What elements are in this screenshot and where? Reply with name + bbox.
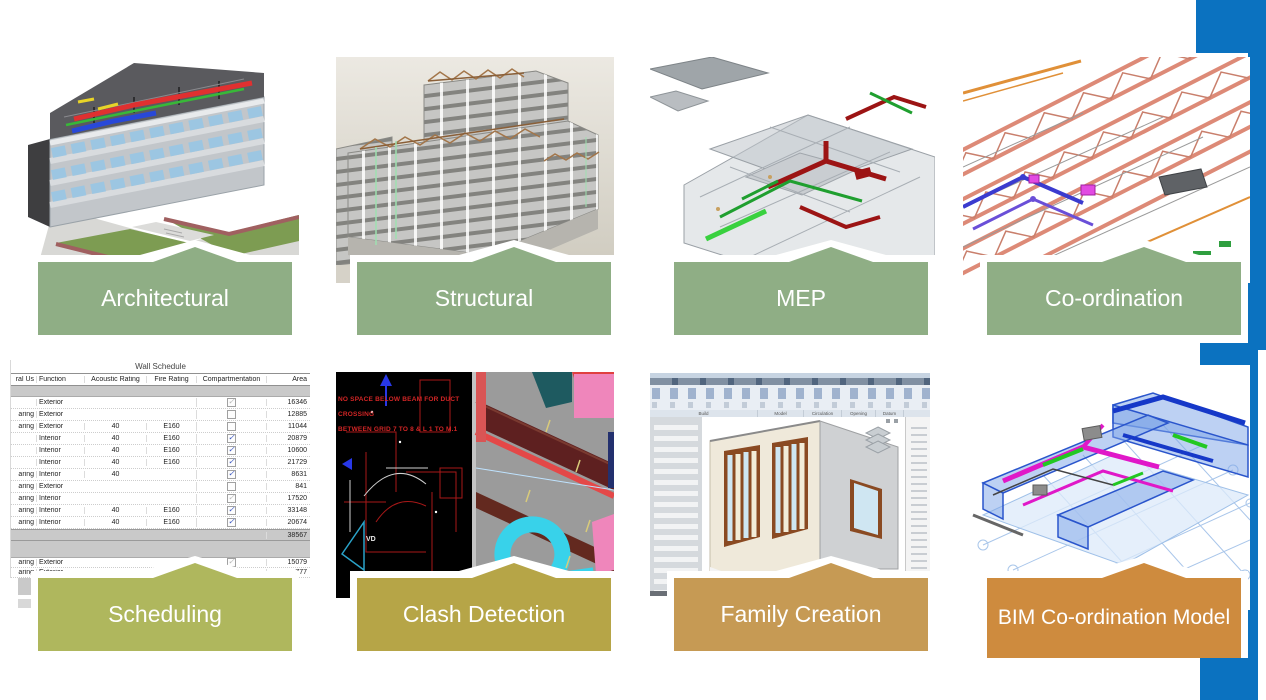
clash-note-line1: NO SPACE BELOW BEAM FOR DUCT CROSSING bbox=[338, 392, 472, 422]
schedule-cell-area: 20879 bbox=[266, 435, 309, 442]
cad-label-vd: VD bbox=[366, 536, 376, 543]
schedule-cell-acoustic: 40 bbox=[84, 507, 146, 514]
wall-schedule-rows: Exterior16346aringExterior12885aringExte… bbox=[11, 397, 310, 529]
schedule-cell-acoustic: 40 bbox=[84, 435, 146, 442]
wall-schedule-title: Wall Schedule bbox=[11, 360, 310, 373]
schedule-cell-area: 8631 bbox=[266, 471, 309, 478]
schedule-cell-usage: aring bbox=[11, 411, 36, 418]
checkbox-checked bbox=[227, 458, 236, 467]
clash-warning-note: NO SPACE BELOW BEAM FOR DUCT CROSSING BE… bbox=[338, 392, 472, 437]
schedule-cell-compartmentation bbox=[196, 422, 266, 431]
ribbon-group-model: Model bbox=[758, 410, 804, 417]
banner-label: Clash Detection bbox=[357, 578, 611, 651]
blue-ribbon-strip bbox=[1248, 0, 1266, 350]
schedule-cell-fire: E160 bbox=[146, 447, 196, 454]
schedule-cell-usage: aring bbox=[11, 507, 36, 514]
schedule-row: Interior40E16010600 bbox=[11, 445, 310, 457]
schedule-row: aringInterior40E16033148 bbox=[11, 505, 310, 517]
schedule-cell-area: 33148 bbox=[266, 507, 309, 514]
banner-coordination: Co-ordination bbox=[980, 240, 1248, 335]
revit-ribbon-icons bbox=[650, 385, 930, 410]
schedule-cell-function: Interior bbox=[36, 495, 84, 502]
schedule-cell-area: 10600 bbox=[266, 447, 309, 454]
schedule-cell-function: Interior bbox=[36, 459, 84, 466]
wall-schedule-header: ral Us Function Acoustic Rating Fire Rat… bbox=[11, 373, 310, 386]
schedule-row: Exterior16346 bbox=[11, 397, 310, 409]
bim-services-slide: Wall Schedule ral Us Function Acoustic R… bbox=[0, 0, 1266, 700]
col-compartmentation: Compartmentation bbox=[196, 376, 266, 383]
schedule-cell-fire: E160 bbox=[146, 459, 196, 466]
schedule-cell-function: Interior bbox=[36, 519, 84, 526]
ribbon-group-datum: Datum bbox=[876, 410, 904, 417]
banner-clash-detection: Clash Detection bbox=[350, 556, 618, 651]
schedule-cell-usage: aring bbox=[11, 519, 36, 526]
schedule-cell-acoustic: 40 bbox=[84, 459, 146, 466]
banner-structural: Structural bbox=[350, 240, 618, 335]
schedule-cell-fire: E160 bbox=[146, 435, 196, 442]
revit-ribbon-group-labels: BuildModelCirculationOpeningDatum bbox=[650, 410, 930, 417]
col-structural-usage: ral Us bbox=[11, 376, 36, 383]
schedule-cell-function: Interior bbox=[36, 447, 84, 454]
schedule-cell-compartmentation bbox=[196, 458, 266, 467]
banner-label: BIM Co-ordination Model bbox=[987, 578, 1241, 658]
schedule-cell-function: Interior bbox=[36, 471, 84, 478]
schedule-cell-compartmentation bbox=[196, 518, 266, 527]
schedule-cell-usage: aring bbox=[11, 423, 36, 430]
schedule-cell-area: 20674 bbox=[266, 519, 309, 526]
schedule-cell-compartmentation bbox=[196, 434, 266, 443]
schedule-cell-compartmentation bbox=[196, 494, 266, 503]
schedule-cell-acoustic: 40 bbox=[84, 423, 146, 430]
checkbox-unchecked bbox=[227, 410, 236, 419]
banner-family-creation: Family Creation bbox=[667, 556, 935, 651]
checkbox-checked bbox=[227, 434, 236, 443]
schedule-cell-area: 17520 bbox=[266, 495, 309, 502]
revit-ribbon-tabs bbox=[650, 378, 930, 385]
schedule-cell-area: 12885 bbox=[266, 411, 309, 418]
banner-label: Structural bbox=[357, 262, 611, 335]
schedule-cell-fire: E160 bbox=[146, 507, 196, 514]
ribbon-group-circulation: Circulation bbox=[804, 410, 842, 417]
schedule-cell-function: Exterior bbox=[36, 423, 84, 430]
schedule-row: Interior40E16021729 bbox=[11, 457, 310, 469]
schedule-cell-usage: aring bbox=[11, 471, 36, 478]
wall-schedule-table: Wall Schedule ral Us Function Acoustic R… bbox=[10, 360, 310, 578]
schedule-row: aringInterior40E16020674 bbox=[11, 517, 310, 529]
schedule-cell-acoustic: 40 bbox=[84, 471, 146, 478]
col-fire-rating: Fire Rating bbox=[146, 376, 196, 383]
schedule-cell-function: Exterior bbox=[36, 411, 84, 418]
checkbox-checked bbox=[227, 446, 236, 455]
schedule-cell-area: 11044 bbox=[266, 423, 309, 430]
schedule-row: aringExterior841 bbox=[11, 481, 310, 493]
col-area: Area bbox=[266, 376, 309, 383]
ribbon-group-build: Build bbox=[650, 410, 758, 417]
schedule-cell-compartmentation bbox=[196, 446, 266, 455]
schedule-cell-function: Interior bbox=[36, 435, 84, 442]
schedule-cell-compartmentation bbox=[196, 482, 266, 491]
banner-bim-coordination-model: BIM Co-ordination Model bbox=[980, 556, 1248, 658]
checkbox-gray-check bbox=[227, 398, 236, 407]
schedule-row: Interior40E16020879 bbox=[11, 433, 310, 445]
total-area-value: 38567 bbox=[266, 532, 309, 539]
col-function: Function bbox=[36, 376, 84, 383]
schedule-cell-compartmentation bbox=[196, 398, 266, 407]
schedule-cell-compartmentation bbox=[196, 410, 266, 419]
schedule-cell-fire: E160 bbox=[146, 423, 196, 430]
banner-label: Scheduling bbox=[38, 578, 292, 651]
schedule-cell-area: 841 bbox=[266, 483, 309, 490]
schedule-cell-usage: aring bbox=[11, 483, 36, 490]
schedule-cell-area: 16346 bbox=[266, 399, 309, 406]
schedule-row: aringExterior40E16011044 bbox=[11, 421, 310, 433]
banner-architectural: Architectural bbox=[31, 240, 299, 335]
clash-note-line2: BETWEEN GRID 7 TO 8 & L 1 TO M.1 bbox=[338, 422, 472, 437]
schedule-group-band bbox=[11, 386, 310, 397]
schedule-cell-acoustic: 40 bbox=[84, 519, 146, 526]
schedule-row: aringInterior17520 bbox=[11, 493, 310, 505]
ribbon-group-opening: Opening bbox=[842, 410, 876, 417]
schedule-row: aringInterior408631 bbox=[11, 469, 310, 481]
schedule-cell-fire: E160 bbox=[146, 519, 196, 526]
checkbox-checked bbox=[227, 470, 236, 479]
banner-label: Family Creation bbox=[674, 578, 928, 651]
schedule-cell-acoustic: 40 bbox=[84, 447, 146, 454]
schedule-cell-function: Exterior bbox=[36, 483, 84, 490]
banner-mep: MEP bbox=[667, 240, 935, 335]
schedule-cell-compartmentation bbox=[196, 506, 266, 515]
checkbox-gray-check bbox=[227, 494, 236, 503]
checkbox-unchecked bbox=[227, 482, 236, 491]
schedule-row: aringExterior12885 bbox=[11, 409, 310, 421]
checkbox-checked bbox=[227, 518, 236, 527]
checkbox-unchecked bbox=[227, 422, 236, 431]
schedule-cell-function: Interior bbox=[36, 507, 84, 514]
checkbox-checked bbox=[227, 506, 236, 515]
schedule-total-row: 38567 bbox=[11, 529, 310, 541]
schedule-cell-area: 21729 bbox=[266, 459, 309, 466]
banner-scheduling: Scheduling bbox=[31, 556, 299, 651]
schedule-cell-function: Exterior bbox=[36, 399, 84, 406]
col-acoustic-rating: Acoustic Rating bbox=[84, 376, 146, 383]
banner-label: Co-ordination bbox=[987, 262, 1241, 335]
schedule-cell-usage: aring bbox=[11, 495, 36, 502]
banner-label: Architectural bbox=[38, 262, 292, 335]
schedule-cell-compartmentation bbox=[196, 470, 266, 479]
banner-label: MEP bbox=[674, 262, 928, 335]
